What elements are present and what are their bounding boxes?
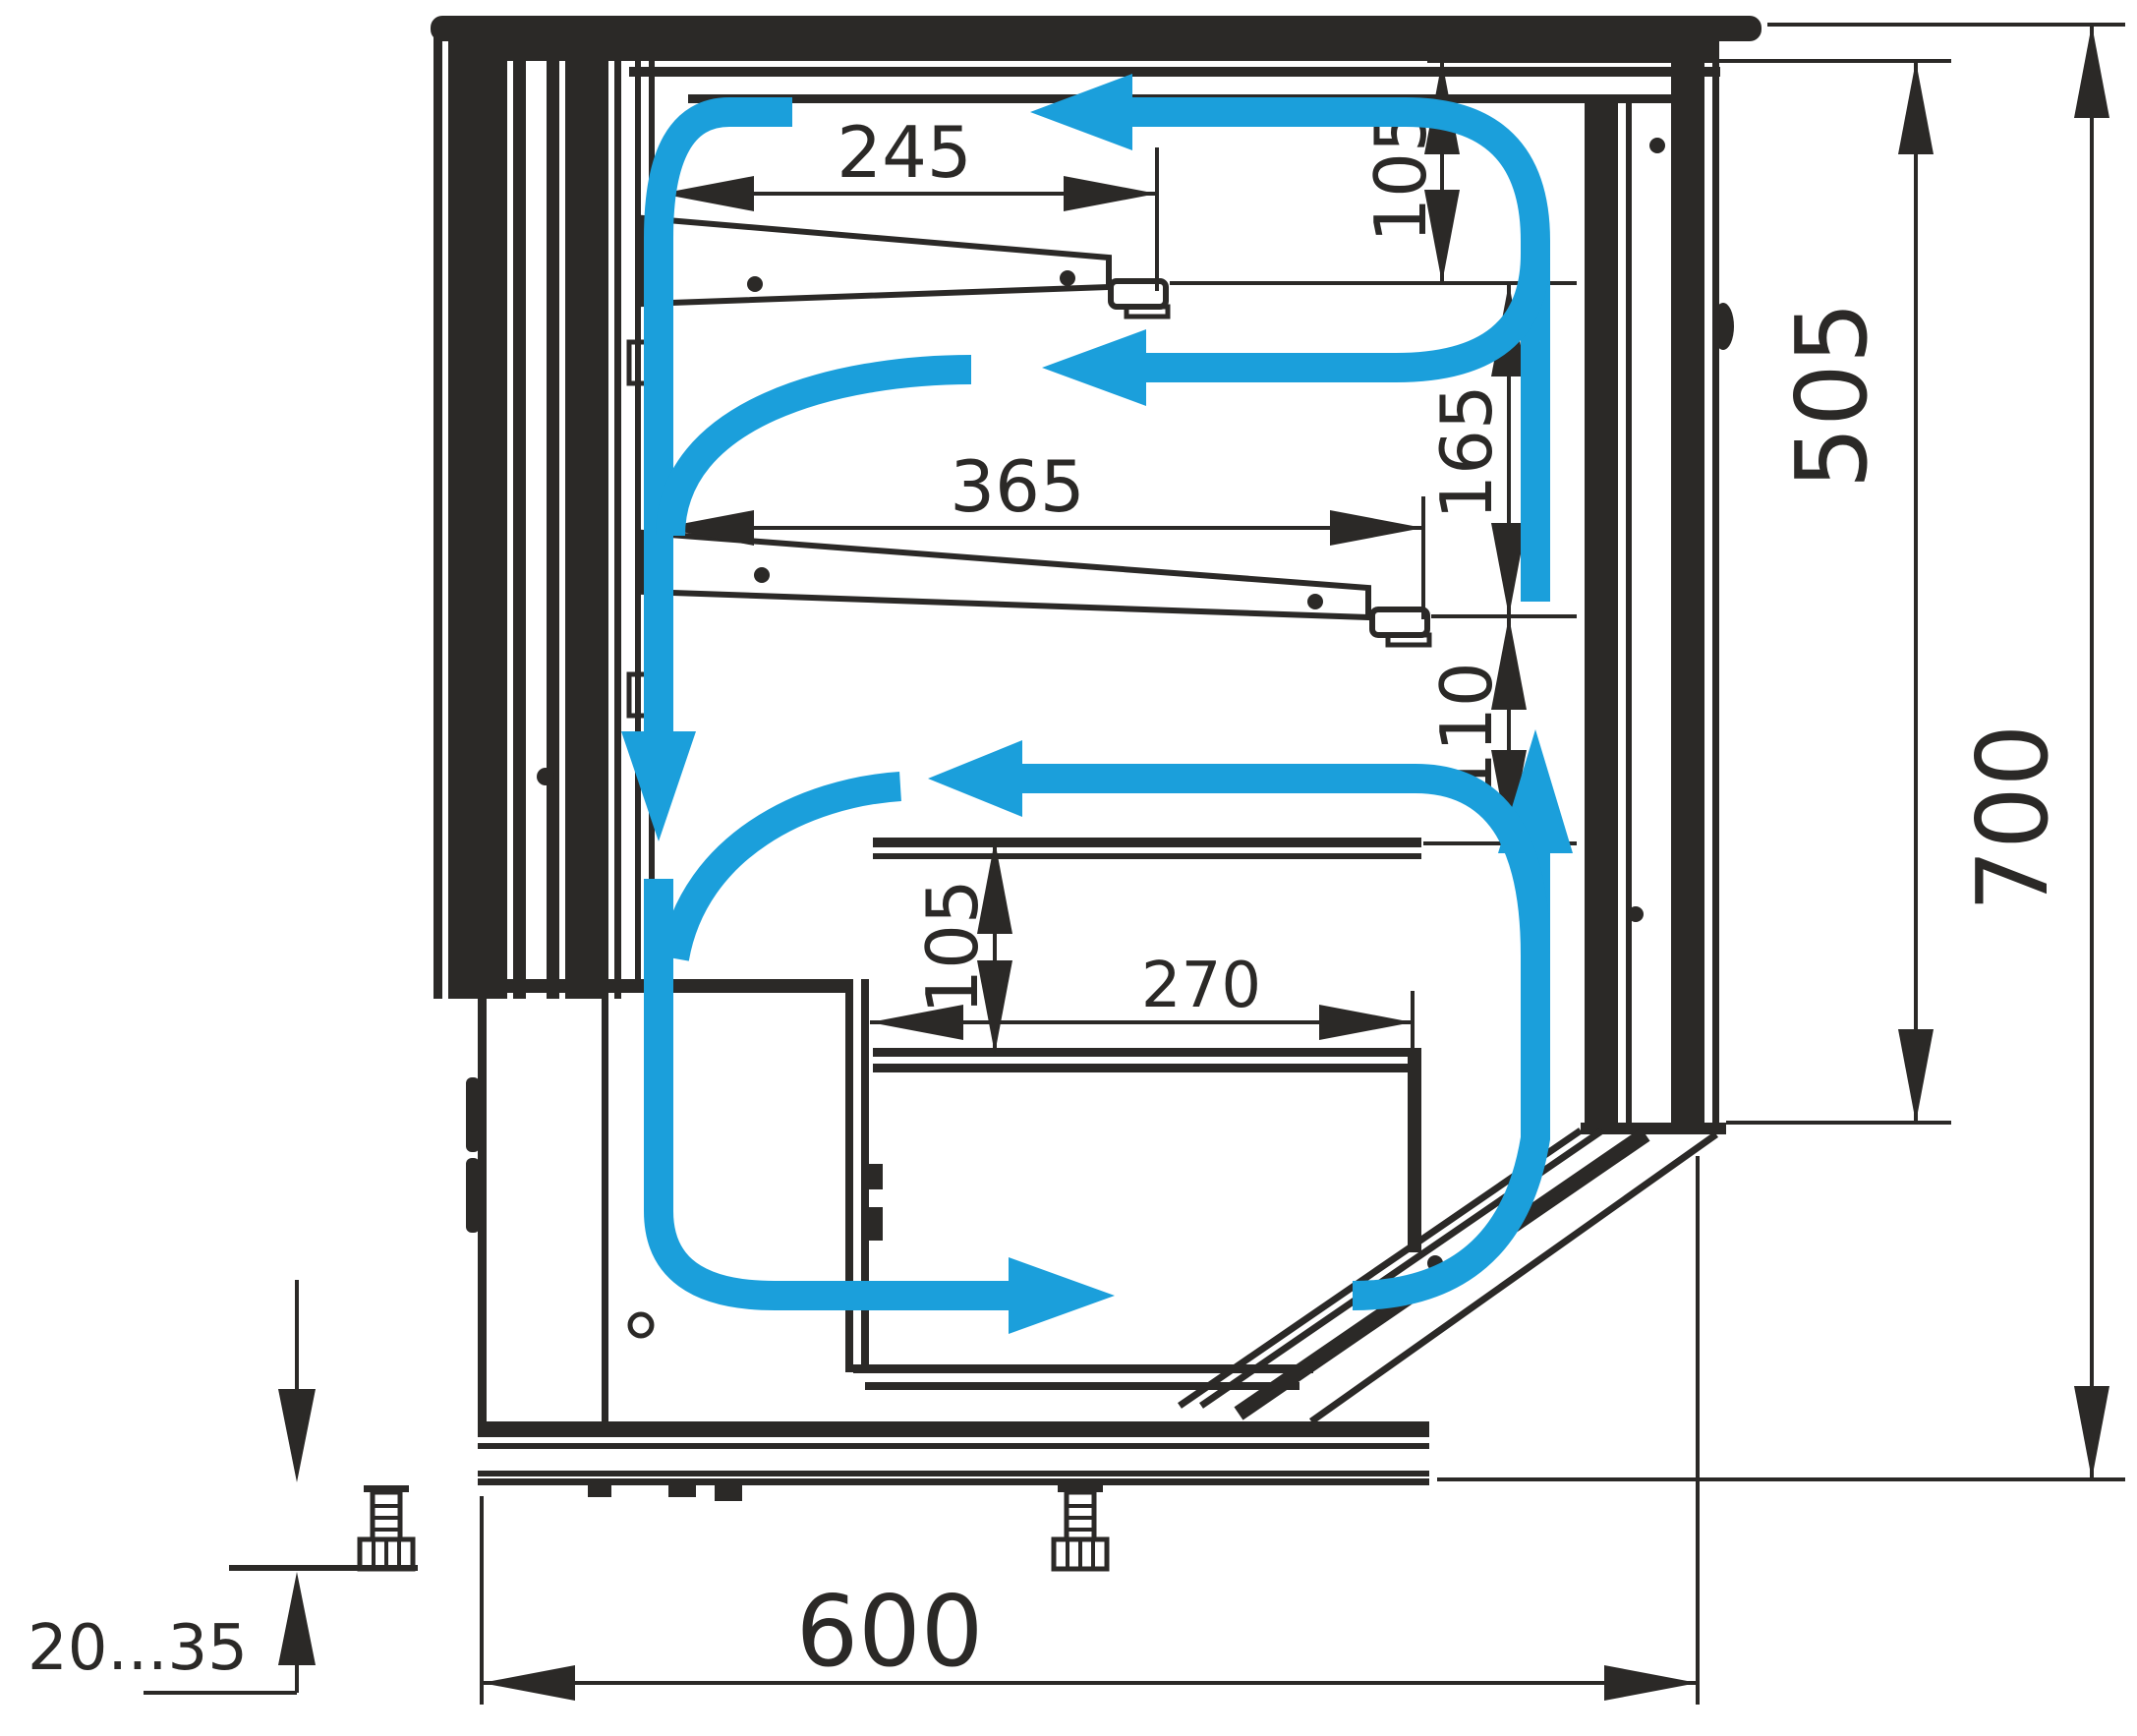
dim-label: 165 <box>1425 384 1508 519</box>
airflow-arrowhead-left <box>928 740 1022 817</box>
shelf-screw <box>754 567 770 583</box>
dim-label: 365 <box>950 445 1084 528</box>
floor-line <box>229 1565 418 1571</box>
shelf-screw <box>1060 270 1075 286</box>
well-rim <box>873 838 1421 847</box>
shelf-top <box>644 218 1168 317</box>
dim-label: 700 <box>1955 724 2070 912</box>
airflow-arrowhead-down <box>621 731 696 841</box>
shelf-front-bracket-tab <box>1388 635 1429 645</box>
top-canopy <box>431 16 1762 41</box>
airflow-bottom-arrow <box>659 879 1115 1334</box>
glass-screw <box>1628 906 1644 922</box>
dim-arrowhead <box>1064 176 1157 211</box>
shelf-front-bracket <box>1372 609 1427 635</box>
dimensions: 245 365 105 165 <box>28 25 2125 1705</box>
compartment-vent-hole <box>630 1314 652 1336</box>
well-bottom-rail <box>853 1364 1313 1373</box>
dim-label: 505 <box>1774 302 1889 490</box>
dim-foot-adjustment: 20...35 <box>28 1280 316 1693</box>
airflow-arrowhead-left <box>1030 74 1132 150</box>
door-hinge <box>466 1077 480 1152</box>
dim-gap-canopy-shelf: 105 <box>1170 61 1951 283</box>
back-wall <box>433 22 621 999</box>
dim-label: 600 <box>796 1574 984 1689</box>
dim-label: 270 <box>1141 950 1261 1022</box>
shelf-middle <box>644 533 1429 645</box>
well-floor <box>873 1048 1417 1057</box>
dim-label: 245 <box>837 111 971 194</box>
dim-opening-height: 505 <box>1726 61 1951 1123</box>
leveling-foot-right <box>1054 1485 1107 1569</box>
top-canopy-inner-band <box>493 41 1718 61</box>
door-hinge <box>466 1158 480 1233</box>
airflow-lower-arrow <box>674 740 1535 958</box>
airflow-arrowhead-left <box>1042 329 1146 406</box>
well-bottom-rail <box>865 1382 1300 1390</box>
shelf-screw <box>1307 594 1323 609</box>
glass-hinge-knob <box>1712 303 1734 350</box>
well-front-sill <box>1408 1048 1421 1252</box>
drawing-canvas: 245 365 105 165 <box>0 0 2137 1736</box>
shelf-front-bracket-tab <box>1126 307 1168 317</box>
dim-label: 105 <box>911 879 994 1013</box>
leveling-foot-left <box>360 1485 413 1569</box>
step-wall <box>845 979 853 1372</box>
airflow-arrowhead-right <box>1009 1257 1115 1334</box>
top-canopy-liner <box>629 67 1720 77</box>
front-glass <box>1581 37 1734 1134</box>
base-platform <box>478 1421 1429 1501</box>
shelf-screw <box>747 276 763 292</box>
glass-screw <box>1649 138 1665 153</box>
dim-shelf-mid-depth: 365 <box>661 445 1423 619</box>
dim-label: 20...35 <box>28 1612 248 1685</box>
machine-compartment <box>466 979 883 1421</box>
back-wall-screw <box>537 768 554 785</box>
